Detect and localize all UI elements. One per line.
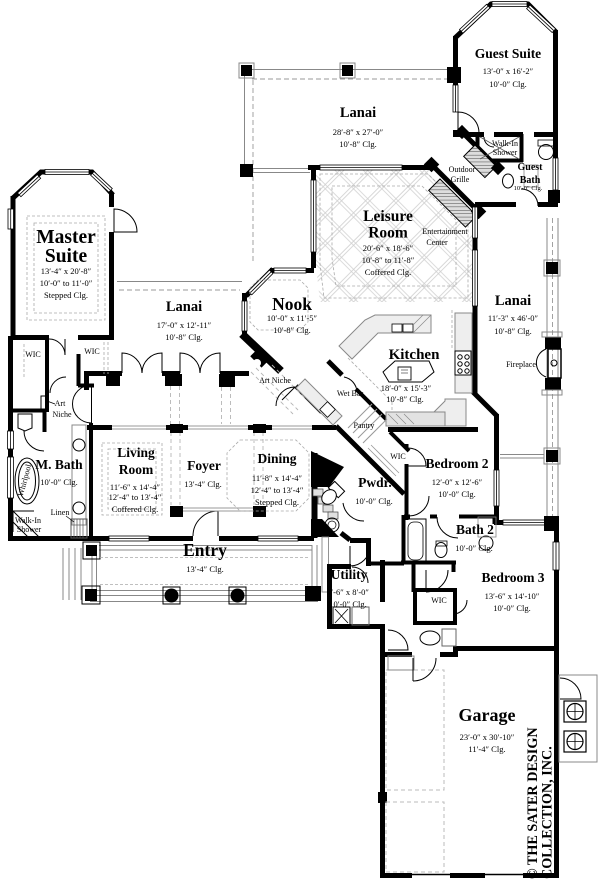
svg-text:10′-0″ x 11′-5″: 10′-0″ x 11′-5″ [267, 313, 318, 323]
svg-text:Fireplace: Fireplace [506, 360, 536, 369]
svg-text:10′-0″ Clg.: 10′-0″ Clg. [329, 599, 367, 609]
svg-text:12′-4″ to 13′-4″: 12′-4″ to 13′-4″ [251, 485, 304, 495]
svg-text:10′-8″ Clg.: 10′-8″ Clg. [339, 139, 377, 149]
svg-text:Suite: Suite [45, 246, 88, 267]
svg-text:COLLECTION, INC.: COLLECTION, INC. [540, 746, 556, 879]
svg-text:Walk-In: Walk-In [492, 139, 518, 148]
svg-text:10′-8″ to 11′-8″: 10′-8″ to 11′-8″ [362, 255, 415, 265]
svg-text:Stepped Clg.: Stepped Clg. [255, 497, 299, 507]
svg-text:Dining: Dining [257, 451, 296, 466]
svg-text:Utility: Utility [331, 567, 368, 582]
svg-text:Lanai: Lanai [166, 299, 202, 315]
svg-text:11′-3″ x 46′-0″: 11′-3″ x 46′-0″ [488, 313, 539, 323]
svg-text:17′-0″ x 12′-11″: 17′-0″ x 12′-11″ [157, 320, 212, 330]
svg-text:10′-0″ Clg.: 10′-0″ Clg. [489, 79, 527, 89]
svg-text:Master: Master [36, 227, 96, 248]
svg-text:13′-0″ x 16′-2″: 13′-0″ x 16′-2″ [483, 66, 534, 76]
svg-text:Stepped Clg.: Stepped Clg. [44, 290, 88, 300]
svg-text:Walk-In: Walk-In [15, 516, 41, 525]
svg-text:Room: Room [368, 225, 408, 242]
svg-text:10′-0″ Clg.: 10′-0″ Clg. [40, 477, 78, 487]
svg-text:12′-0″ x 12′-6″: 12′-0″ x 12′-6″ [432, 477, 483, 487]
svg-text:Guest Suite: Guest Suite [475, 46, 541, 61]
svg-text:10′-0″ Clg.: 10′-0″ Clg. [455, 543, 493, 553]
svg-text:13′-4″ Clg.: 13′-4″ Clg. [186, 564, 224, 574]
svg-text:Nook: Nook [272, 294, 312, 314]
svg-text:M. Bath: M. Bath [35, 457, 83, 472]
svg-text:Wet Bar: Wet Bar [337, 389, 364, 398]
svg-text:Pantry: Pantry [354, 421, 375, 430]
svg-text:WIC: WIC [25, 350, 41, 359]
svg-text:Garage: Garage [459, 705, 516, 725]
svg-text:28′-8″ x 27′-0″: 28′-8″ x 27′-0″ [333, 127, 384, 137]
svg-text:Bedroom 2: Bedroom 2 [425, 456, 488, 471]
svg-text:18′-0″ x 15′-3″: 18′-0″ x 15′-3″ [381, 383, 432, 393]
svg-text:10′-0″ Clg.: 10′-0″ Clg. [438, 489, 476, 499]
svg-text:Niche: Niche [52, 410, 72, 419]
svg-text:Living: Living [117, 445, 155, 460]
svg-text:Coffered Clg.: Coffered Clg. [365, 267, 412, 277]
svg-text:Foyer: Foyer [187, 458, 221, 473]
svg-text:Linen: Linen [51, 508, 70, 517]
svg-text:Leisure: Leisure [363, 208, 413, 225]
svg-text:Lanai: Lanai [340, 105, 376, 121]
svg-text:10′-8″ Clg.: 10′-8″ Clg. [165, 332, 203, 342]
svg-text:Room: Room [119, 462, 154, 477]
svg-text:Center: Center [426, 238, 448, 247]
svg-text:8′-6″ x 8′-0″: 8′-6″ x 8′-0″ [327, 587, 369, 597]
svg-text:23′-0″ x 30′-10″: 23′-0″ x 30′-10″ [460, 732, 515, 742]
svg-text:10′-0″ Clg.: 10′-0″ Clg. [493, 603, 531, 613]
svg-text:10′-8″ Clg.: 10′-8″ Clg. [273, 325, 311, 335]
svg-text:13′-4″ Clg.: 13′-4″ Clg. [184, 479, 222, 489]
svg-text:10′-8″ Clg.: 10′-8″ Clg. [386, 394, 424, 404]
svg-text:Bath 2: Bath 2 [456, 522, 494, 537]
svg-text:20′-6″ x 18′-6″: 20′-6″ x 18′-6″ [363, 243, 414, 253]
svg-text:13′-4″ x 20′-8″: 13′-4″ x 20′-8″ [41, 266, 92, 276]
svg-text:Coffered Clg.: Coffered Clg. [112, 504, 159, 514]
svg-text:11′-6″ x 14′-4″: 11′-6″ x 14′-4″ [110, 482, 161, 492]
svg-text:WIC: WIC [84, 347, 100, 356]
svg-text:Kitchen: Kitchen [389, 347, 440, 363]
svg-text:Shower: Shower [493, 148, 518, 157]
svg-text:Bedroom 3: Bedroom 3 [481, 570, 544, 585]
svg-text:12′-4″ to 13′-4″: 12′-4″ to 13′-4″ [109, 492, 162, 502]
svg-text:Pwdr.: Pwdr. [358, 475, 392, 490]
svg-text:Art: Art [55, 399, 66, 408]
svg-text:Shower: Shower [17, 525, 42, 534]
svg-text:11′-4″ Clg.: 11′-4″ Clg. [468, 744, 505, 754]
svg-text:Art Niche: Art Niche [259, 376, 291, 385]
svg-text:Outdoor: Outdoor [449, 165, 476, 174]
svg-text:11′-8″ x 14′-4″: 11′-8″ x 14′-4″ [252, 473, 303, 483]
svg-text:10′-0″ Clg.: 10′-0″ Clg. [355, 496, 393, 506]
svg-text:Grille: Grille [451, 175, 470, 184]
svg-text:10′-8″ Clg.: 10′-8″ Clg. [494, 326, 532, 336]
svg-text:WIC: WIC [390, 452, 406, 461]
svg-text:WIC: WIC [431, 596, 447, 605]
svg-text:10′-0″ to 11′-0″: 10′-0″ to 11′-0″ [40, 278, 93, 288]
svg-text:Entry: Entry [183, 540, 227, 560]
svg-text:Entertainment: Entertainment [422, 227, 468, 236]
svg-text:Guest: Guest [518, 162, 544, 173]
svg-text:10′-0″ Clg.: 10′-0″ Clg. [514, 185, 543, 192]
svg-text:Lanai: Lanai [495, 293, 531, 309]
svg-text:13′-6″ x 14′-10″: 13′-6″ x 14′-10″ [485, 591, 540, 601]
